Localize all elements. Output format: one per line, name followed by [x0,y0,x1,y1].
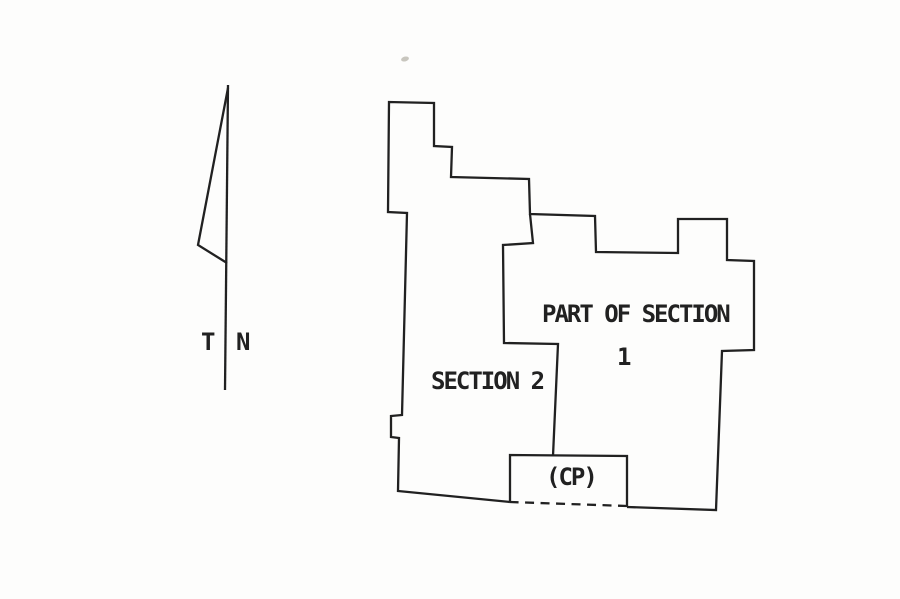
section-division-line [503,214,558,456]
north-arrow-shaft [225,85,228,390]
label-part-of-section: PART OF SECTION [542,302,729,326]
label-section-2: SECTION 2 [431,369,543,393]
label-cp-parcel: (CP) [546,465,596,489]
scan-artifact-mark [401,56,410,63]
label-true-north-n: N [236,330,248,354]
parcel-outline-dashed-cp-segment [510,502,627,506]
survey-drawing [0,0,900,599]
survey-plat-page: PART OF SECTION 1 SECTION 2 (CP) T N [0,0,900,599]
label-section-1-number: 1 [617,345,629,369]
label-true-north-t: T [201,330,213,354]
north-arrow-pennant [198,88,228,263]
